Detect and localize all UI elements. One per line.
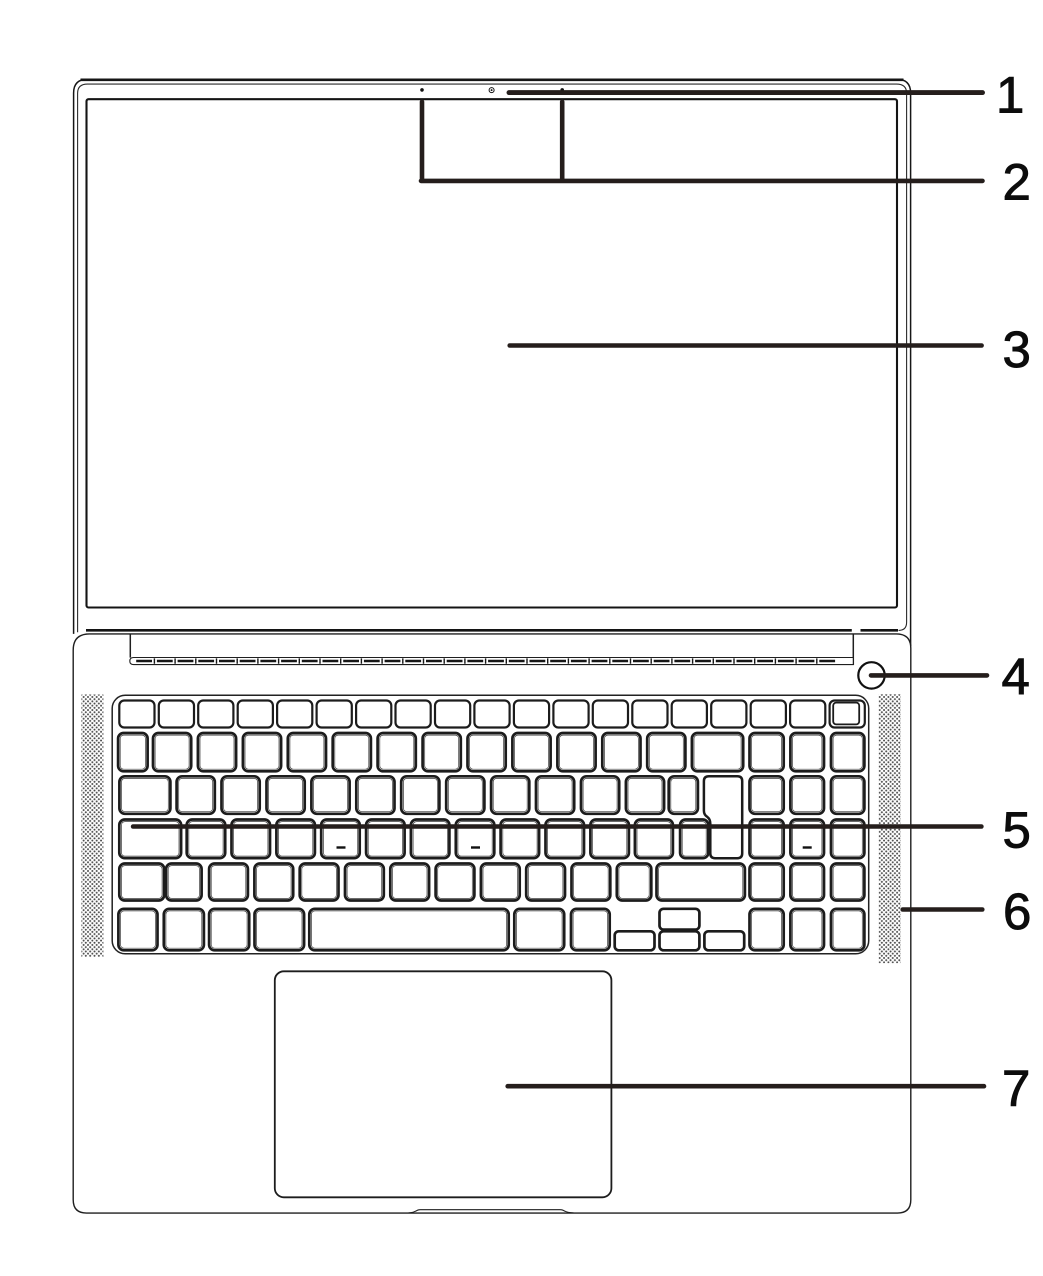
svg-text:2: 2 [1003, 154, 1031, 211]
svg-text:7: 7 [1002, 1060, 1030, 1117]
svg-text:3: 3 [1003, 321, 1031, 378]
svg-text:4: 4 [1002, 648, 1030, 705]
svg-text:5: 5 [1003, 802, 1031, 859]
svg-text:1: 1 [996, 67, 1024, 124]
svg-text:6: 6 [1003, 883, 1031, 940]
